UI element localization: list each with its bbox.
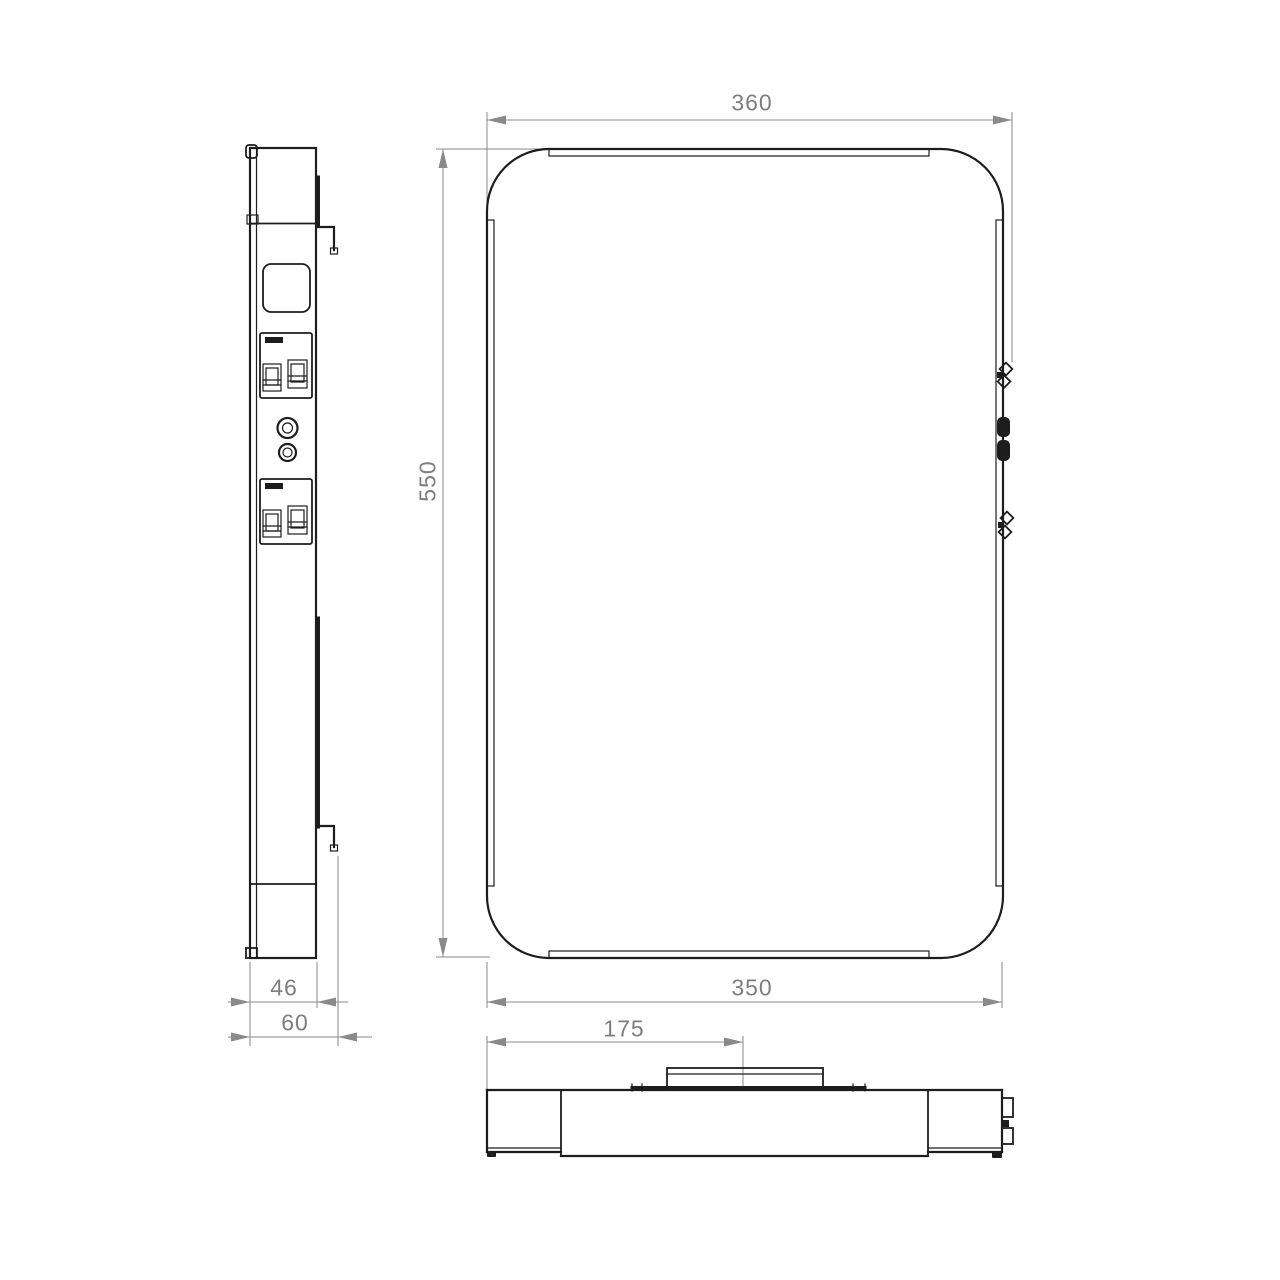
side-cable-grommets <box>278 418 298 461</box>
side-glass-bottom-cap <box>246 948 257 958</box>
side-view <box>246 145 338 958</box>
dim-panel-height <box>436 149 557 957</box>
dim-label-bracket-offset: 175 <box>603 1016 644 1043</box>
side-wall-hook-bottom <box>318 826 338 851</box>
dim-label-panel-height: 550 <box>415 460 442 501</box>
side-junction-box <box>263 264 310 312</box>
front-panel-outline <box>487 149 1003 958</box>
dim-bracket-offset <box>487 1036 743 1091</box>
bottom-foot-right <box>992 1152 1002 1158</box>
drawing-linework <box>0 0 1280 1280</box>
bottom-view <box>487 1068 1013 1158</box>
front-mounting-clip-bottom <box>998 512 1013 539</box>
side-terminal-block-lower <box>260 479 312 544</box>
dim-label-panel-width: 350 <box>731 975 772 1002</box>
front-mounting-clip-top <box>997 363 1012 388</box>
dimension-lines <box>228 112 1012 1091</box>
side-wall-hook-top <box>318 227 338 254</box>
front-view <box>487 149 1013 958</box>
bottom-foot-left <box>487 1152 496 1157</box>
dim-label-overall-depth: 60 <box>281 1010 309 1037</box>
dim-label-overall-width: 360 <box>731 90 772 117</box>
bottom-end-clips <box>1002 1098 1013 1144</box>
technical-drawing-canvas: 360 550 350 175 46 60 <box>0 0 1280 1280</box>
side-terminal-block-upper <box>260 333 312 398</box>
dim-label-panel-depth: 46 <box>270 975 298 1002</box>
side-body-outline <box>250 148 316 958</box>
